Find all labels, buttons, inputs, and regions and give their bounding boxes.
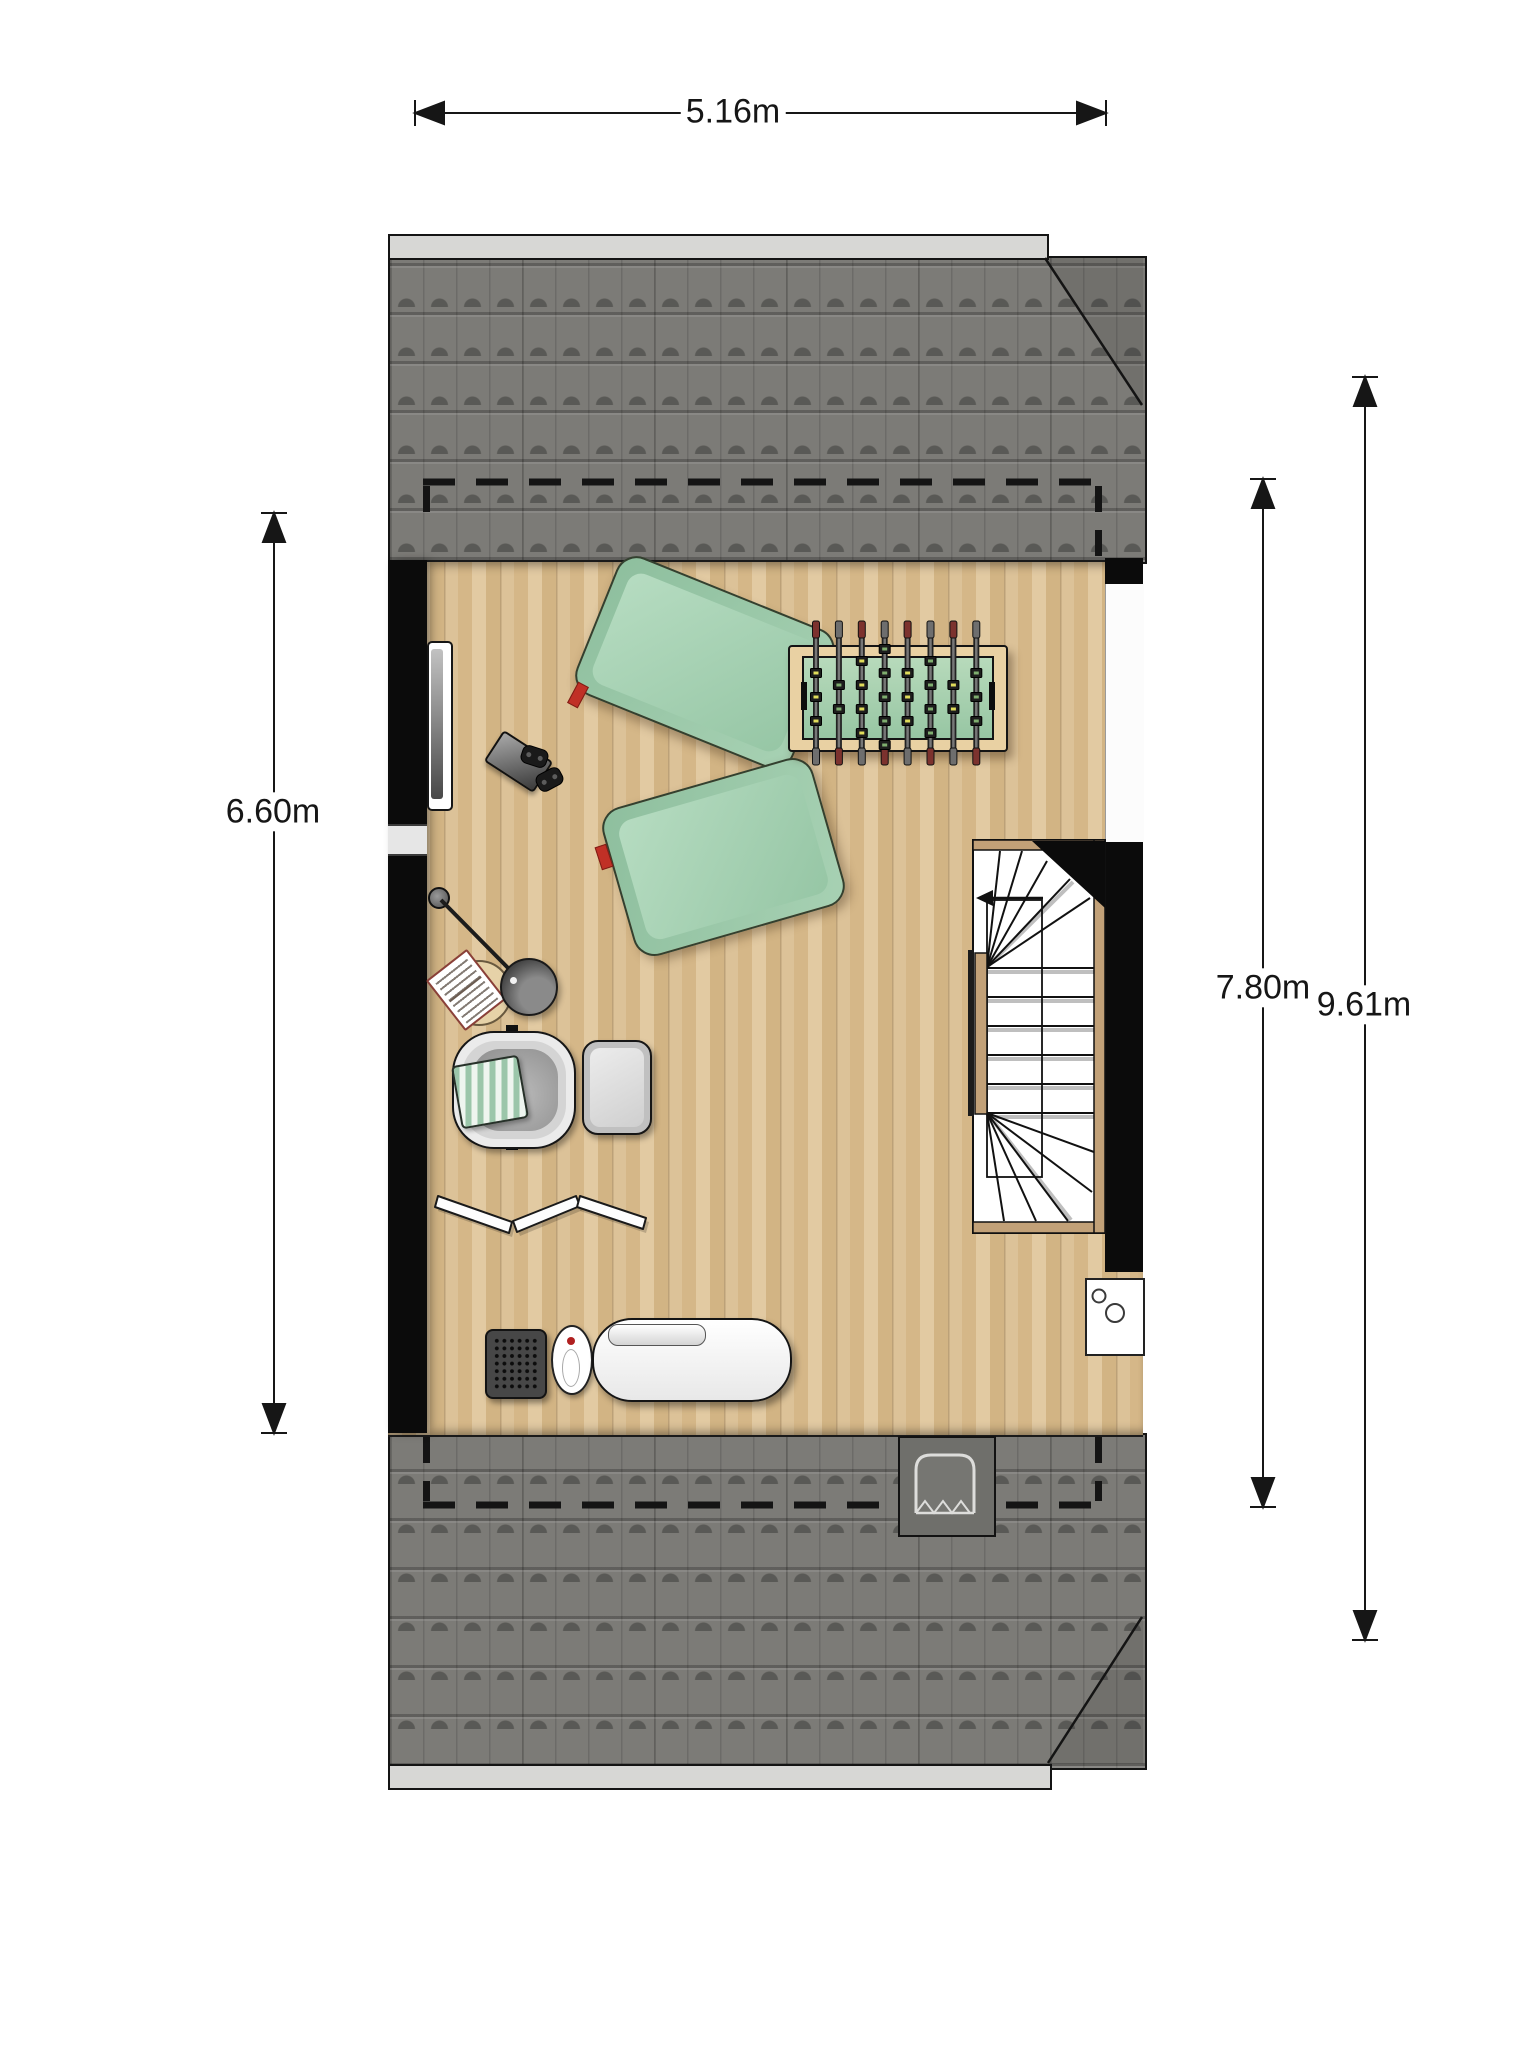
roof-ridge-strip-bottom (388, 1764, 1052, 1790)
vase-body (562, 1349, 580, 1387)
dimension-left (261, 513, 287, 1433)
ottoman (582, 1040, 652, 1135)
boiler-unit (1085, 1278, 1145, 1356)
foosball-goal-right (989, 682, 995, 710)
roof-section-bottom (388, 1433, 1147, 1770)
wall-left (388, 560, 427, 1433)
ottoman-top (590, 1048, 644, 1127)
wall-top-right (1105, 558, 1143, 584)
knee-wall-strip-right (1105, 584, 1144, 842)
daybed-pillow (608, 1324, 706, 1346)
foosball-field (802, 656, 994, 740)
roof-section-top (388, 256, 1147, 564)
daybed-lounger (592, 1318, 792, 1402)
tv-panel (427, 641, 453, 811)
striped-pillow (451, 1055, 529, 1130)
floor-lamp-base (428, 887, 450, 909)
foosball-table (788, 645, 1008, 752)
vase-red-dot (567, 1337, 575, 1345)
vase (551, 1325, 593, 1395)
floor-plan-canvas: 5.16m 6.60m 7.80m 9.61m (0, 0, 1536, 2048)
floor-lamp-shade (500, 958, 558, 1016)
speaker (485, 1329, 547, 1399)
dimension-label-outer-height: 9.61m (1312, 985, 1417, 1024)
dimension-label-left-height: 6.60m (221, 792, 326, 831)
roof-ridge-strip-top (388, 234, 1049, 260)
roof-window-box (898, 1436, 996, 1537)
dimension-label-inner-height: 7.80m (1211, 968, 1316, 1007)
wall-window-left (388, 824, 427, 856)
lamp-highlight (510, 977, 517, 984)
dimension-label-width: 5.16m (681, 92, 786, 131)
wall-stairwell-right (1105, 842, 1143, 1272)
speaker-grille (493, 1337, 539, 1391)
tv-screen (431, 649, 443, 799)
foosball-goal-left (801, 682, 807, 710)
